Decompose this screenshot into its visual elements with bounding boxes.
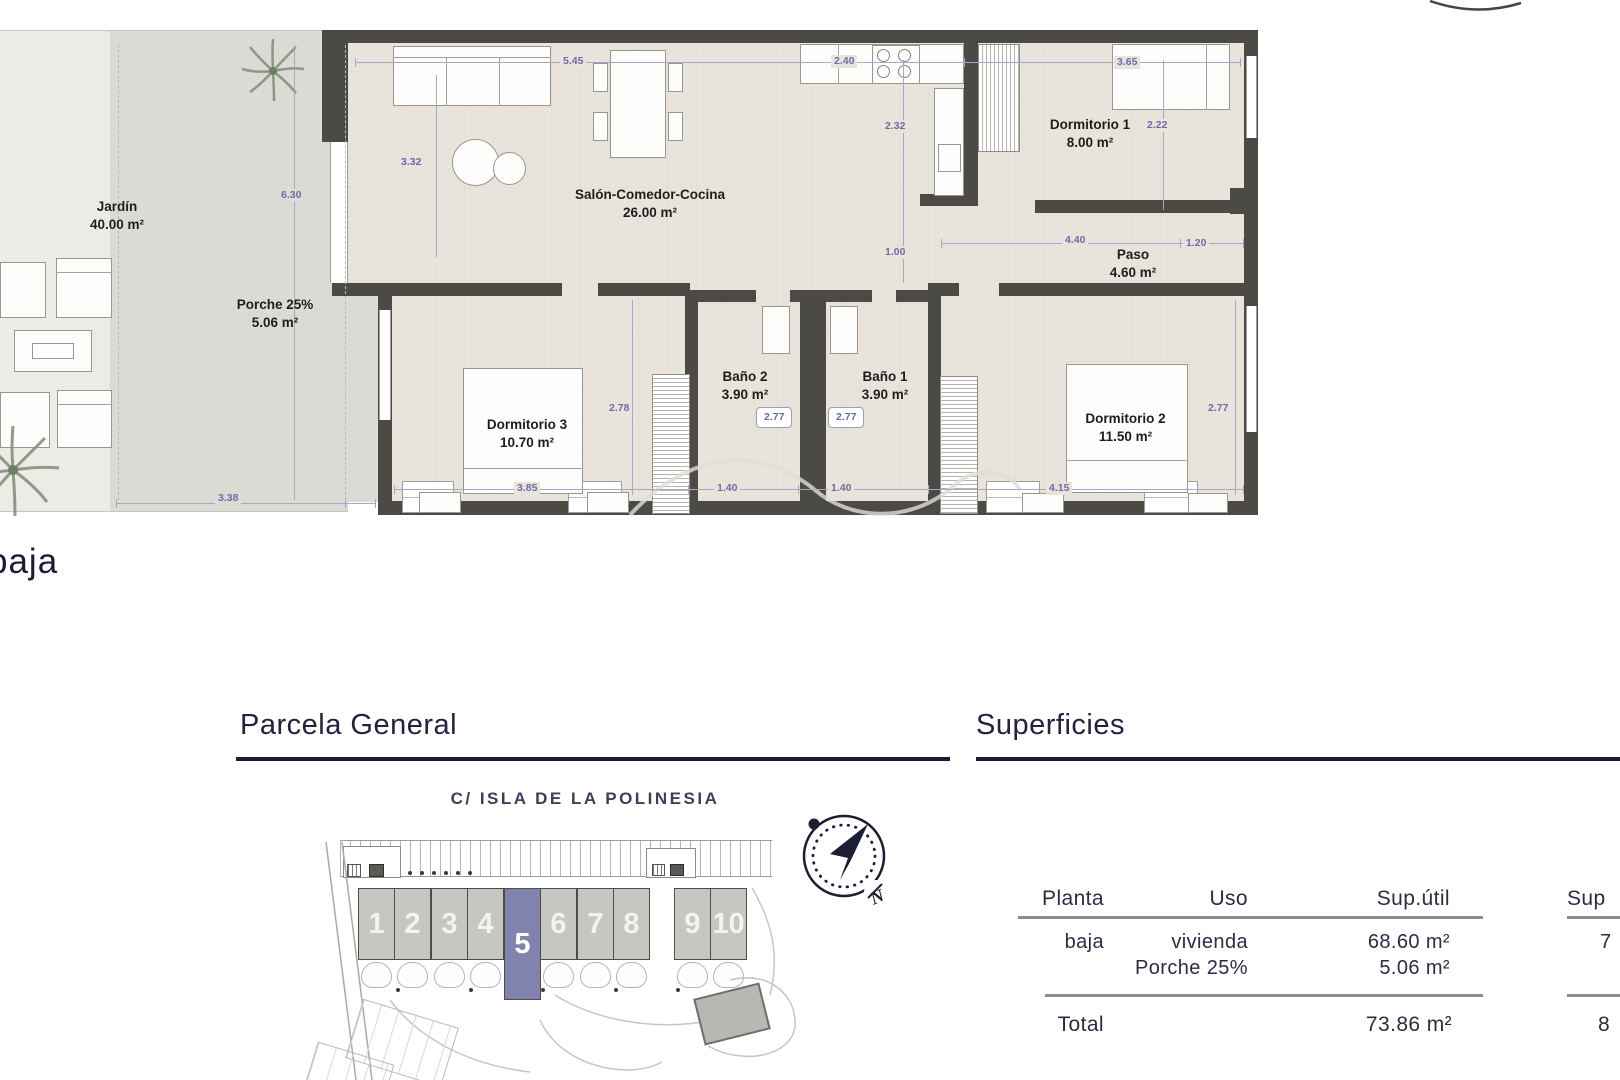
total-label: Total (980, 1012, 1104, 1037)
section-rule (976, 757, 1620, 761)
wall-segment (690, 290, 756, 302)
room-label-bano-2: Baño 2 3.90 m² (690, 368, 800, 403)
dimension-label: 3.38 (215, 492, 241, 505)
chair (668, 112, 683, 141)
room-area: 40.00 m² (62, 216, 172, 234)
dimension-label: 2.40 (831, 55, 857, 68)
stove-burner (877, 49, 890, 62)
wall-segment (896, 290, 928, 302)
sofa-line (446, 57, 447, 106)
dimension-label: 2.78 (606, 402, 632, 415)
column-header-sup-const-cut: Sup (1567, 886, 1620, 911)
garden-porch-area (110, 30, 348, 512)
dimension-tick (1243, 239, 1244, 248)
toilet (830, 306, 858, 354)
lounger-line (56, 272, 112, 273)
room-label-dormitorio-3: Dormitorio 3 10.70 m² (462, 416, 592, 451)
wall-segment (322, 30, 1258, 43)
section-title-parcela: Parcela General (240, 710, 457, 742)
dimension-label: 3.32 (398, 156, 424, 169)
room-name: Baño 1 (830, 368, 940, 386)
dimension-label: 3.85 (514, 482, 540, 495)
cell-sup-const-cut: 7 (1600, 930, 1620, 954)
dimension-label: 5.45 (560, 55, 586, 68)
room-name: Baño 2 (690, 368, 800, 386)
room-label-jardin: Jardín 40.00 m² (62, 198, 172, 233)
bed-line (1206, 44, 1207, 110)
wall-segment (964, 42, 978, 202)
dimension-line (436, 75, 437, 257)
kitchen-sink (938, 144, 961, 172)
garden-table-inner (32, 343, 74, 359)
dimension-tick (355, 58, 356, 67)
palm-tree-icon (0, 418, 65, 523)
total-sup-util: 73.86 m² (1292, 1012, 1452, 1037)
logo-arc (1428, 0, 1523, 15)
chair (668, 63, 683, 92)
cell-sup-util-2: 5.06 m² (1292, 956, 1450, 980)
compass-icon: N (790, 792, 898, 910)
room-area: 3.90 m² (830, 386, 940, 404)
cell-sup-util-1: 68.60 m² (1292, 930, 1450, 954)
section-rule (236, 757, 950, 761)
dimension-line (1163, 60, 1164, 210)
bed (1112, 44, 1230, 110)
column-header-planta: Planta (980, 886, 1104, 911)
bed-line (463, 468, 583, 469)
room-label-dormitorio-2: Dormitorio 2 11.50 m² (1058, 410, 1193, 445)
dimension-label: 2.32 (882, 120, 908, 133)
dimension-tick (688, 485, 689, 494)
dimension-label: 2.77 (828, 407, 864, 428)
room-area: 4.60 m² (1078, 264, 1188, 282)
sofa-line (393, 57, 551, 58)
dimension-dashed-line (345, 45, 346, 500)
coffee-table (452, 139, 499, 186)
palm-tree-icon (238, 35, 308, 107)
toilet (762, 306, 790, 354)
dimension-tick (345, 499, 346, 508)
dimension-tick (116, 499, 117, 508)
dining-table (610, 50, 666, 158)
nightstand (419, 492, 461, 513)
total-sup-const-cut: 8 (1598, 1012, 1620, 1037)
plan-page: 5.45 2.40 3.65 3.32 2.32 2.22 6.30 1.00 … (0, 0, 1620, 1080)
window (1246, 306, 1257, 432)
sofa-line (499, 57, 500, 106)
dimension-tick (964, 58, 965, 67)
cell-uso-2: Porche 25% (1128, 956, 1248, 980)
dimension-label: 6.30 (278, 189, 304, 202)
dimension-tick (375, 499, 376, 508)
dimension-label: 4.40 (1062, 234, 1088, 247)
stove-burner (898, 49, 911, 62)
wall-segment (999, 283, 1244, 296)
sun-lounger (57, 390, 112, 448)
room-name: Dormitorio 1 (1030, 116, 1150, 134)
room-area: 26.00 m² (565, 204, 735, 222)
room-name: Jardín (62, 198, 172, 216)
room-name: Dormitorio 2 (1058, 410, 1193, 428)
dimension-label: 4.15 (1046, 482, 1072, 495)
column-header-sup-util: Sup.útil (1292, 886, 1450, 911)
table-rule (1567, 994, 1620, 997)
stove-burner (898, 65, 911, 78)
room-name: Porche 25% (215, 296, 335, 314)
dimension-label: 2.77 (756, 407, 792, 428)
dimension-label: 1.00 (882, 246, 908, 259)
sun-lounger (0, 262, 46, 318)
dimension-tick (798, 485, 799, 494)
room-area: 11.50 m² (1058, 428, 1193, 446)
room-label-bano-1: Baño 1 3.90 m² (830, 368, 940, 403)
porch-notch (348, 296, 378, 502)
dimension-tick (394, 485, 395, 494)
wall-segment (1230, 188, 1258, 214)
room-name: Paso (1078, 246, 1188, 264)
wall-segment (941, 283, 959, 296)
room-label-dormitorio-1: Dormitorio 1 8.00 m² (1030, 116, 1150, 151)
watermark (610, 430, 1040, 540)
dimension-label: 3.65 (1114, 56, 1140, 69)
wall-segment (394, 283, 562, 296)
dimension-tick (941, 239, 942, 248)
dimension-line (355, 62, 1240, 63)
dimension-label: 1.40 (714, 482, 740, 495)
room-area: 3.90 m² (690, 386, 800, 404)
chair (593, 63, 608, 92)
dimension-line (1235, 300, 1236, 495)
sun-lounger (56, 258, 112, 318)
cell-uso-1: vivienda (1128, 930, 1248, 954)
wall-segment (1035, 200, 1244, 213)
table-rule (1045, 994, 1483, 997)
window (1246, 56, 1257, 138)
dimension-line (294, 45, 295, 500)
kitchen-column (934, 88, 964, 196)
dimension-label: 2.77 (1205, 402, 1231, 415)
wardrobe (978, 44, 1020, 152)
room-name: Dormitorio 3 (462, 416, 592, 434)
cell-planta: baja (980, 930, 1104, 954)
dimension-tick (1240, 58, 1241, 67)
dimension-tick (1243, 485, 1244, 494)
room-label-porche: Porche 25% 5.06 m² (215, 296, 335, 331)
chair (593, 112, 608, 141)
room-label-salon: Salón-Comedor-Cocina 26.00 m² (565, 186, 735, 221)
room-area: 10.70 m² (462, 434, 592, 452)
dimension-label: 1.40 (828, 482, 854, 495)
nightstand (1188, 493, 1228, 513)
dimension-dashed-line (118, 45, 119, 500)
room-area: 5.06 m² (215, 314, 335, 332)
wall-segment (598, 283, 690, 296)
table-rule (1567, 916, 1620, 919)
coffee-table (493, 152, 526, 185)
window (379, 310, 391, 420)
plan-caption: baja (0, 544, 58, 579)
dimension-line (116, 503, 376, 504)
room-area: 8.00 m² (1030, 134, 1150, 152)
room-label-paso: Paso 4.60 m² (1078, 246, 1188, 281)
section-title-superficies: Superficies (976, 710, 1125, 742)
stove-burner (877, 65, 890, 78)
table-rule (1018, 916, 1483, 919)
sofa (393, 46, 551, 106)
bed-line (1066, 460, 1188, 461)
room-name: Salón-Comedor-Cocina (565, 186, 735, 204)
column-header-uso: Uso (1128, 886, 1248, 911)
dimension-line (632, 300, 633, 495)
street-label: C/ ISLA DE LA POLINESIA (425, 790, 745, 807)
lounger-line (57, 404, 112, 405)
dimension-tick (928, 485, 929, 494)
